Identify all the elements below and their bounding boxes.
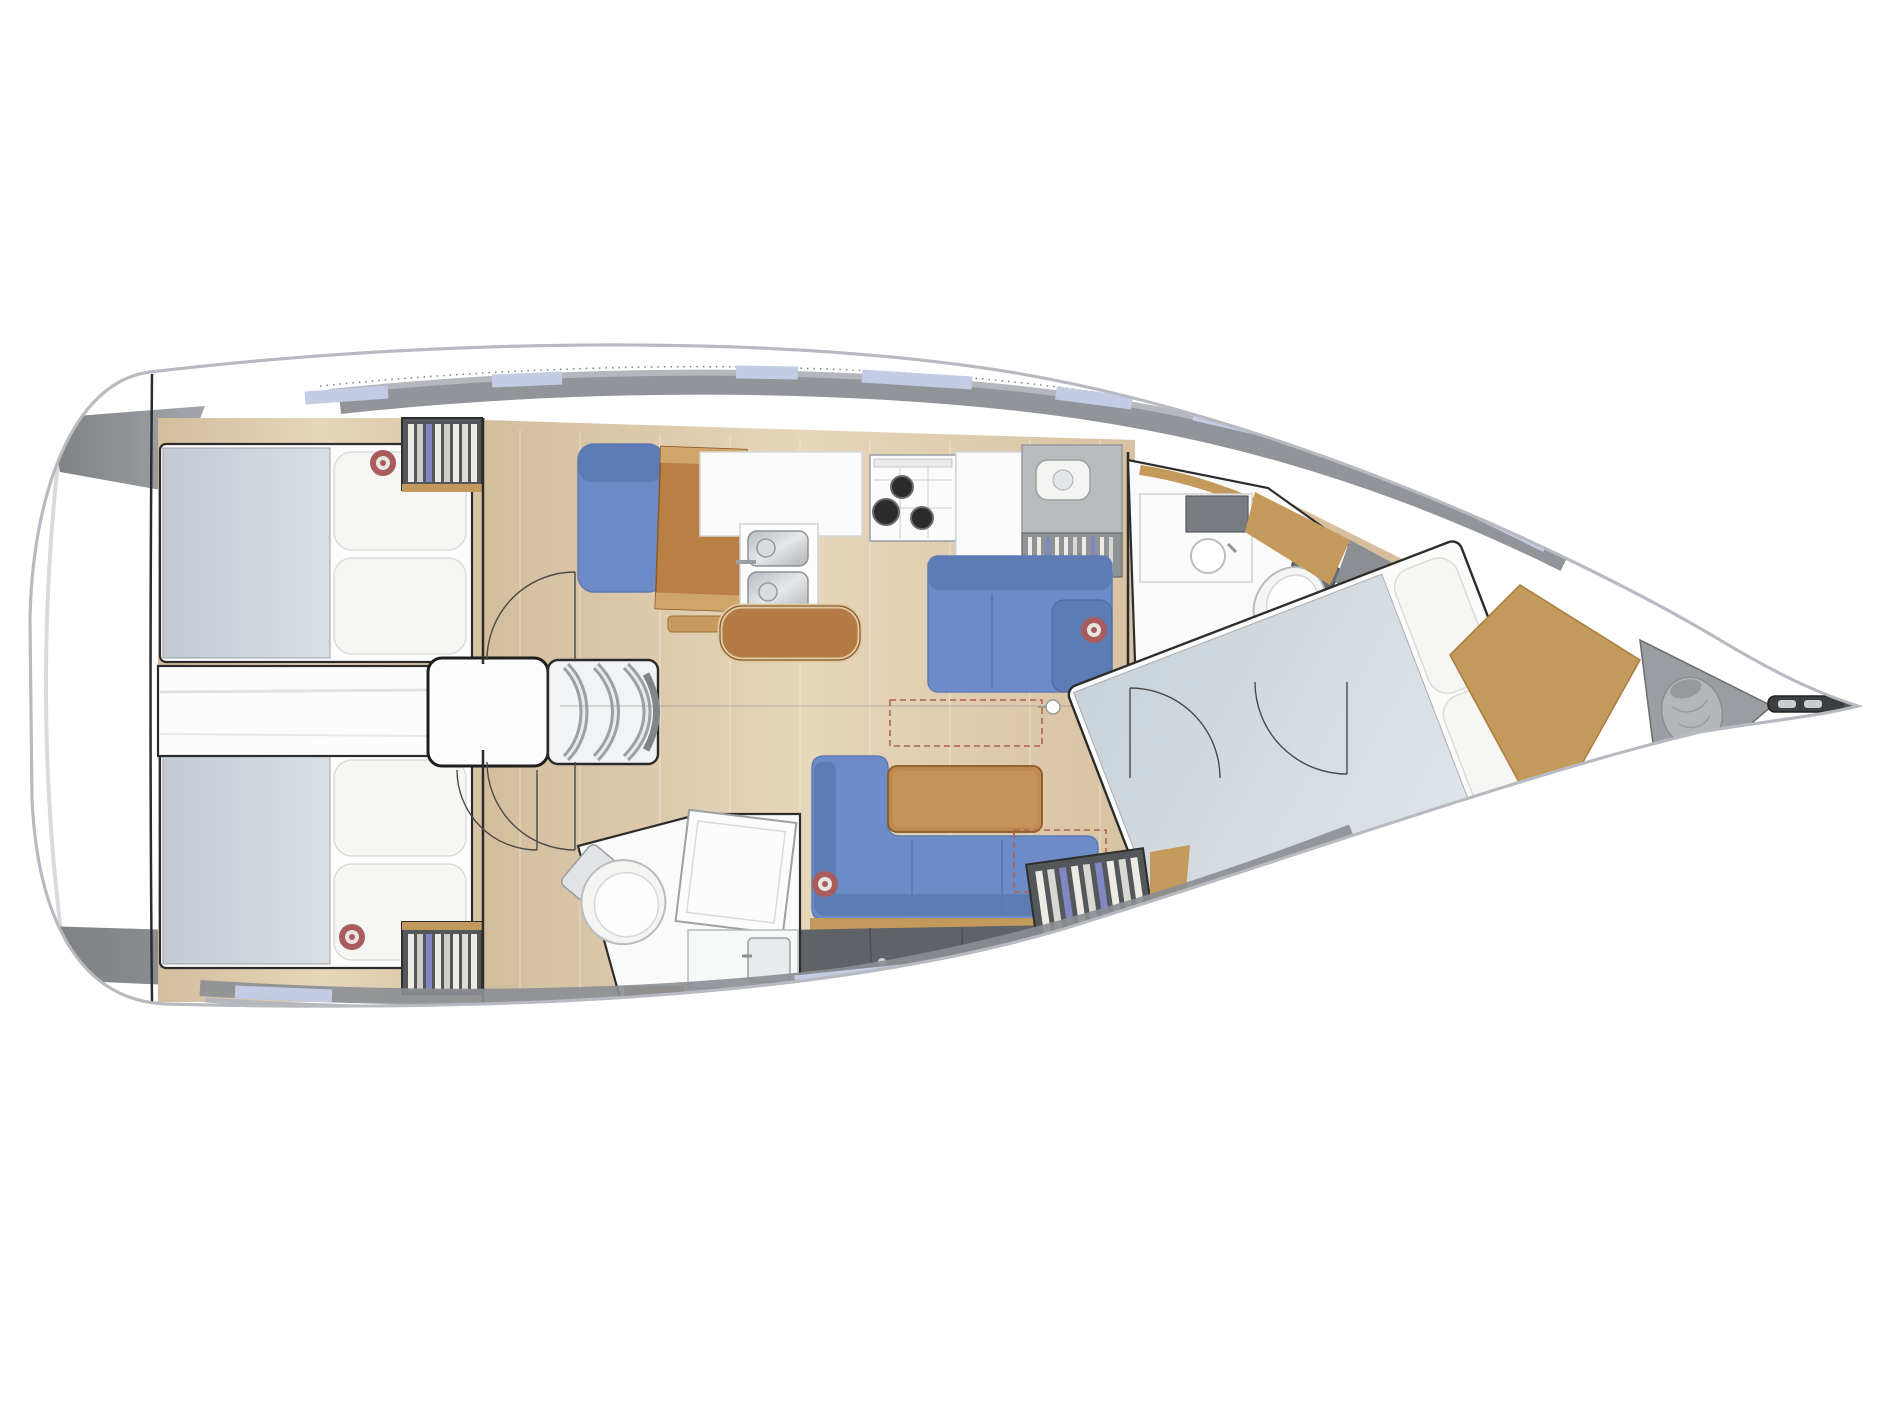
transom-wall <box>151 374 153 1002</box>
shower-panel <box>676 810 797 934</box>
burner-icon <box>891 476 913 498</box>
aft-cabin-port <box>158 418 485 665</box>
floorplan-svg <box>0 0 1889 1416</box>
under-sofa-cabinets <box>786 924 1108 998</box>
speaker-icon <box>812 871 838 897</box>
mattress-aft-port <box>163 448 330 658</box>
aft-galley-counter <box>1022 445 1122 533</box>
stove <box>870 455 956 541</box>
wardrobe-aft-starboard <box>402 922 482 994</box>
sink-icon <box>1191 539 1225 573</box>
aft-cabin-starboard <box>158 748 485 1002</box>
speaker-icon <box>1081 617 1107 643</box>
companionway-hatch <box>428 658 548 766</box>
galley-island-bench <box>720 606 860 660</box>
burner-icon <box>873 499 899 525</box>
engine-compartment <box>158 666 430 756</box>
pillow <box>334 558 466 654</box>
companionway <box>158 658 658 766</box>
speaker-icon <box>339 924 365 950</box>
forward-head-vanity <box>1140 494 1252 582</box>
nav-seat-back <box>578 444 664 482</box>
speaker-icon <box>370 450 396 476</box>
salon-table-top <box>893 771 1037 827</box>
pillow <box>334 760 466 856</box>
companionway-steps <box>548 660 658 764</box>
wardrobe-aft-port <box>402 418 482 492</box>
burner-icon <box>911 507 933 529</box>
vanity-counter <box>1186 496 1248 532</box>
mattress-aft-starboard <box>163 756 330 964</box>
yacht-floorplan-canvas <box>0 0 1889 1416</box>
engine-hatch-line <box>160 690 428 692</box>
